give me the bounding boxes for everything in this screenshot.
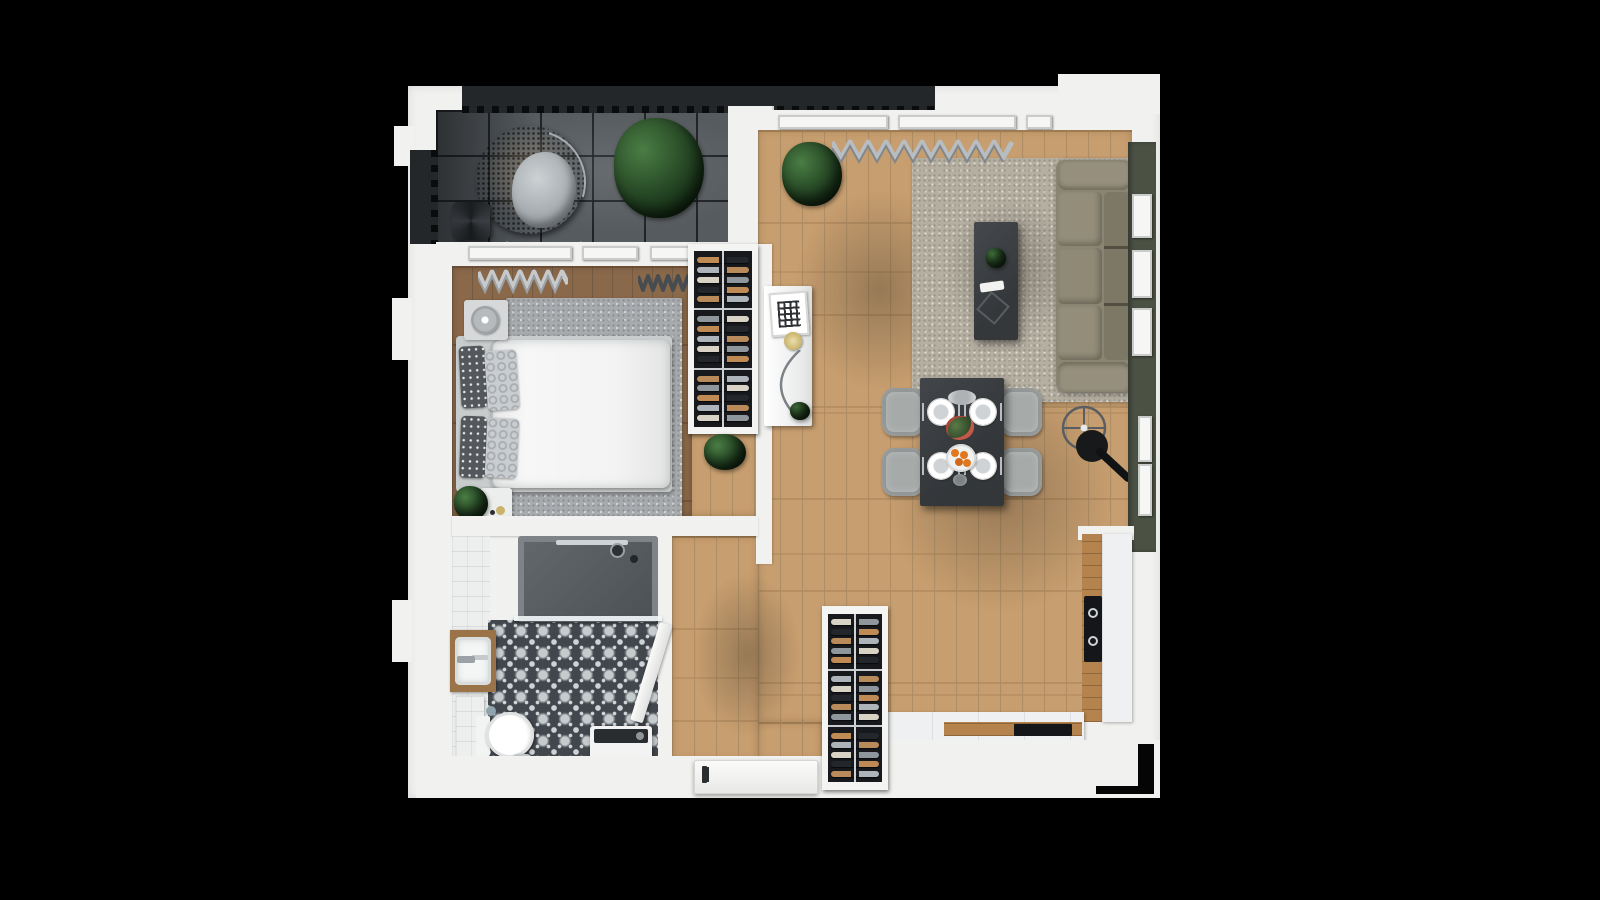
living-window-frame-2 [898,115,1016,129]
hanging-egg-chair [474,124,590,250]
balcony-railing-left [410,150,438,244]
fruit-oranges [951,449,959,457]
door-handle-icon [702,766,707,783]
wine-bottle-row [697,267,749,273]
console-plant [790,402,810,420]
serving-platter [948,390,976,405]
living-window-frame-3 [1026,115,1052,129]
wine-rack-section [828,614,882,671]
kitchen-counter-right [1102,534,1132,722]
wine-bottle-row [697,316,749,322]
wine-bottle-row [831,742,879,748]
wine-bottle-row [831,771,879,777]
wine-bottle-row [831,761,879,767]
sofa-seat-3 [1058,306,1102,360]
wine-bottle-row [697,346,749,352]
wine-bottle-row [697,415,749,421]
sofa [1056,160,1132,392]
wine-rack-hall-bottles [828,614,882,782]
wine-bottle-row [831,648,879,654]
dining-chair-2 [882,448,924,496]
toilet-paper-icon [486,706,496,716]
wine-bottle-row [831,752,879,758]
dining-chair-4 [1000,448,1042,496]
wall-art-5 [1138,464,1152,516]
console-lamp-icon [784,332,802,350]
hallway-floor-south [758,722,822,760]
cooktop-burner-1 [1088,608,1098,618]
sofa-back-cushions [1104,192,1130,360]
coffee-table-plant [986,248,1006,268]
sink-faucet-icon [457,656,475,663]
wine-bottle-row [831,686,879,692]
wine-rack-section [694,251,752,310]
wall-art-4 [1138,416,1152,462]
wine-rack-hall [822,606,888,790]
wall-niche-inner [1096,744,1138,786]
table-lamp-icon [471,306,499,334]
plate-2 [970,399,996,425]
wine-rack-section [694,370,752,427]
wine-bottle-row [831,695,879,701]
wall-tab-left-3 [392,600,412,662]
hall-plant [704,434,746,470]
entry-door [694,760,818,794]
oven-front [1014,724,1072,736]
wine-bottle-row [697,326,749,332]
pillow-dark-bottom [459,416,487,479]
balcony-lantern-table [452,202,490,240]
wine-rack-section [828,671,882,728]
wine-bottle-row [831,733,879,739]
balcony-plant [614,118,704,218]
wine-bottle-row [697,385,749,391]
pillow-light-bottom [484,417,519,479]
fruit-bowl [946,444,976,472]
wall-tab-left-2 [392,298,412,360]
framed-print [769,291,810,338]
wine-rack-wall-bottles [694,251,752,427]
wine-bottle-row [697,287,749,293]
small-bowl [953,474,967,486]
wine-bottle-row [697,296,749,302]
bedroom-curtain-icon [478,264,568,296]
living-curtain-icon [832,136,1014,164]
living-window-frame-1 [778,115,888,129]
wine-rack-section [828,727,882,782]
sofa-armrest-bottom [1058,362,1130,390]
wall-top-right-block [1058,74,1160,114]
bedroom-plant [454,486,488,520]
wine-bottle-row [831,629,879,635]
wine-bottle-row [697,336,749,342]
wine-bottle-row [831,676,879,682]
bedroom-window-frame-2 [582,246,638,260]
wine-bottle-row [831,619,879,625]
wall-art-1 [1132,194,1152,238]
wine-bottle-row [697,405,749,411]
shower-drain-icon [630,555,638,563]
wine-bottle-row [831,714,879,720]
cooktop-burner-2 [1088,636,1098,646]
wine-bottle-row [697,277,749,283]
nightstand-decor [496,506,505,515]
wine-bottle-row [697,395,749,401]
wine-bottle-row [697,356,749,362]
dining-chair-1 [882,388,924,436]
wall-art-2 [1132,250,1152,298]
floor-lamp-icon [1042,396,1142,492]
pillow-light-top [484,349,520,411]
dining-chair-3 [1000,388,1042,436]
wine-bottle-row [697,376,749,382]
sofa-seat-2 [1058,248,1102,304]
wine-rack-section [694,310,752,369]
shower-tray [518,536,658,622]
washer-dial-icon [636,732,644,740]
wine-bottle-row [831,704,879,710]
sofa-seat-1 [1058,192,1102,246]
wall-art-3 [1132,308,1152,356]
toilet-bowl [486,712,534,758]
sofa-armrest-top [1058,162,1130,190]
wine-rack-wall [688,244,758,434]
wine-bottle-row [831,657,879,663]
wine-bottle-row [697,257,749,263]
shower-head-icon [612,545,623,556]
balcony-railing-top [462,86,935,113]
wall-bedroom-south [452,516,758,536]
hallway-floor [672,536,758,760]
cooktop [1084,596,1102,662]
floor-plan-render [0,0,1600,900]
shower-glass-panel [514,616,662,621]
bedroom-window-frame-1 [468,246,572,260]
wine-bottle-row [831,638,879,644]
